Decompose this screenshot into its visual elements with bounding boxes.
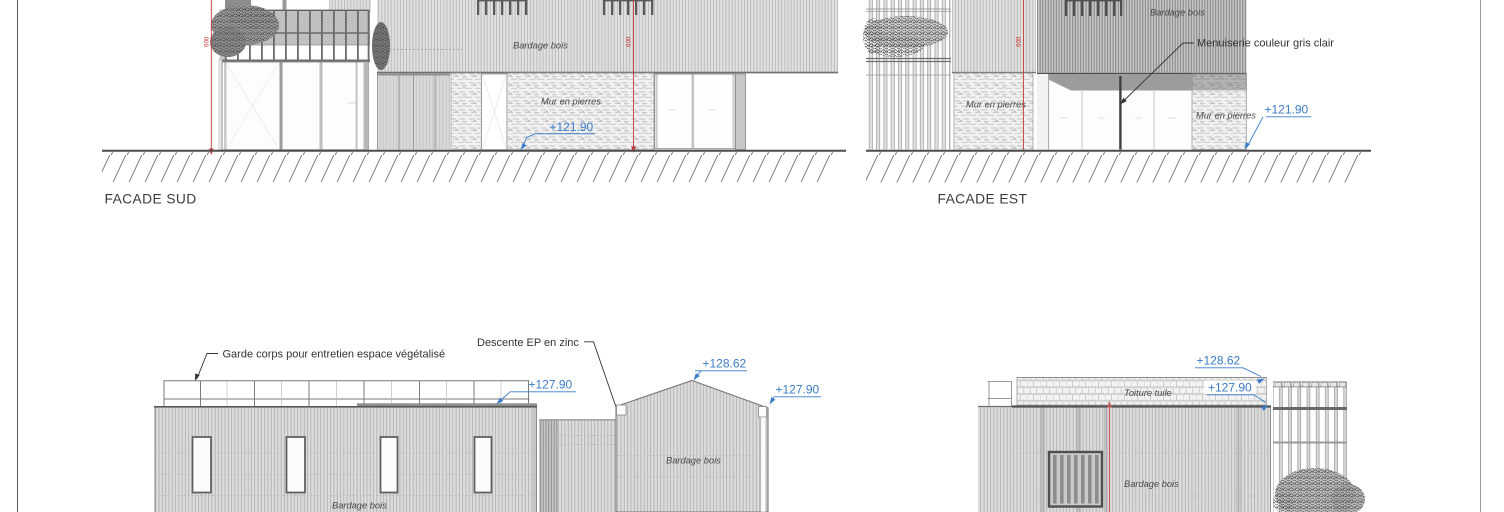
svg-text:Mur en pierres: Mur en pierres [541, 97, 601, 107]
svg-text:600: 600 [626, 36, 633, 47]
svg-text:Bardage bois: Bardage bois [1124, 479, 1179, 489]
svg-text:Descente EP en zinc: Descente EP en zinc [477, 337, 579, 349]
svg-text:+121.90: +121.90 [550, 120, 594, 134]
svg-text:+121.90: +121.90 [1265, 103, 1309, 117]
svg-text:Mur en pierres: Mur en pierres [966, 100, 1026, 110]
svg-text:+128.62: +128.62 [703, 357, 747, 371]
svg-text:Bardage bois: Bardage bois [666, 456, 721, 466]
svg-text:+127.90: +127.90 [1208, 381, 1252, 395]
svg-text:+127.90: +127.90 [529, 378, 573, 392]
svg-text:Garde corps pour entretien esp: Garde corps pour entretien espace végéta… [223, 349, 446, 361]
svg-text:+127.90: +127.90 [776, 383, 820, 397]
svg-text:600: 600 [203, 36, 210, 47]
svg-text:+128.62: +128.62 [1197, 354, 1241, 368]
svg-text:Menuiserie couleur gris clair: Menuiserie couleur gris clair [1197, 38, 1334, 50]
svg-text:Mur en pierres: Mur en pierres [1196, 111, 1256, 121]
svg-text:600: 600 [1016, 36, 1023, 47]
svg-text:Bardage bois: Bardage bois [513, 41, 568, 51]
svg-text:Toiture tuile: Toiture tuile [1124, 388, 1172, 398]
svg-text:Bardage bois: Bardage bois [332, 501, 387, 511]
svg-text:Bardage bois: Bardage bois [1150, 8, 1205, 18]
svg-text:FACADE SUD: FACADE SUD [105, 192, 197, 207]
svg-text:FACADE EST: FACADE EST [938, 192, 1028, 207]
